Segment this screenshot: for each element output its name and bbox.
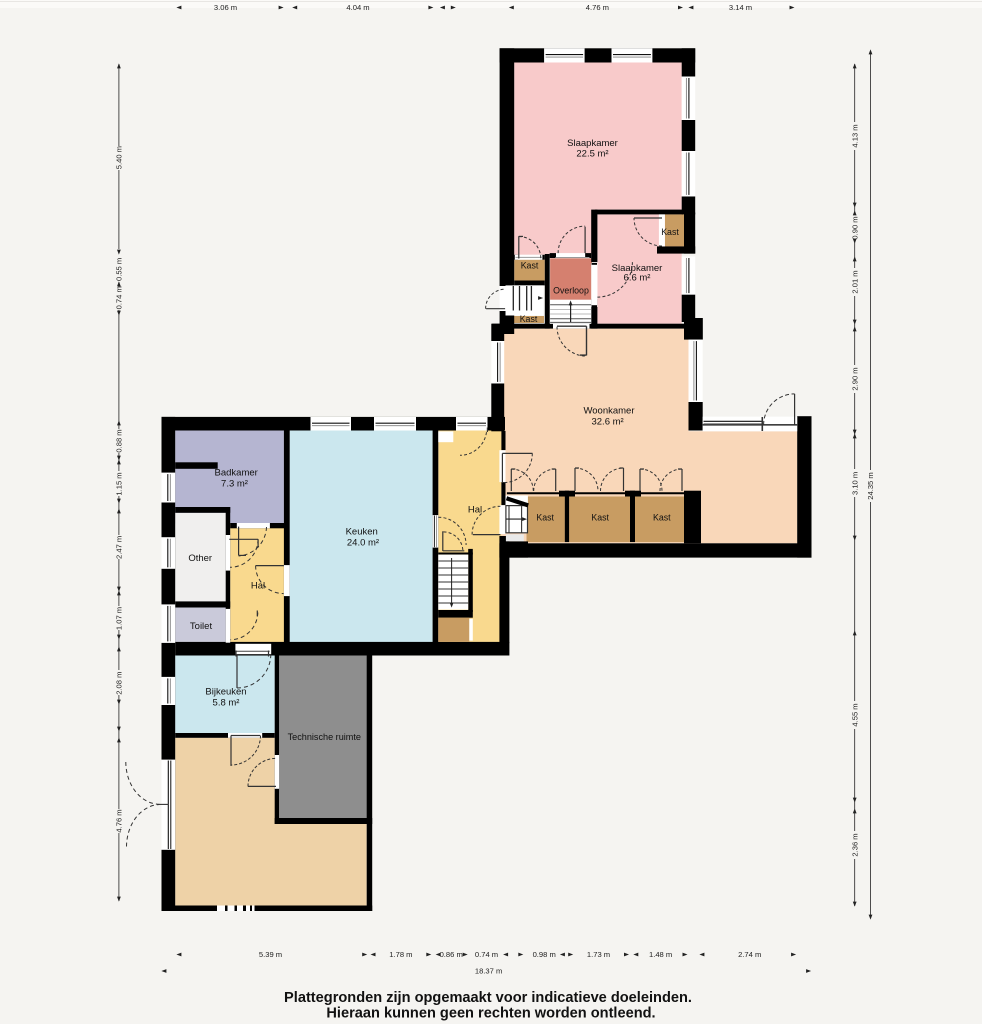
svg-text:Badkamer: Badkamer — [215, 468, 258, 479]
svg-text:Kast: Kast — [661, 227, 679, 237]
svg-text:4.55 m: 4.55 m — [850, 703, 859, 726]
svg-text:2.74 m: 2.74 m — [738, 950, 761, 959]
svg-text:4.13 m: 4.13 m — [850, 124, 859, 147]
svg-text:1.73 m: 1.73 m — [587, 950, 610, 959]
svg-text:0.55 m: 0.55 m — [115, 258, 124, 281]
svg-text:Plattegronden zijn opgemaakt v: Plattegronden zijn opgemaakt voor indica… — [284, 990, 692, 1006]
svg-text:Hal: Hal — [251, 581, 265, 592]
svg-text:2.47 m: 2.47 m — [115, 536, 124, 559]
svg-text:1.07 m: 1.07 m — [115, 607, 124, 630]
svg-text:5.8 m²: 5.8 m² — [213, 698, 240, 709]
svg-text:32.6 m²: 32.6 m² — [591, 417, 623, 428]
svg-text:Keuken: Keuken — [346, 527, 378, 538]
svg-text:0.86 m: 0.86 m — [440, 950, 463, 959]
svg-text:Other: Other — [188, 553, 212, 564]
svg-text:1.15 m: 1.15 m — [115, 472, 124, 495]
svg-text:5.40 m: 5.40 m — [115, 146, 124, 169]
svg-text:Kast: Kast — [521, 261, 539, 271]
svg-text:3.06 m: 3.06 m — [214, 3, 237, 12]
svg-text:0.74 m: 0.74 m — [115, 286, 124, 309]
svg-text:Woonkamer: Woonkamer — [583, 406, 634, 417]
svg-text:Kast: Kast — [536, 513, 554, 523]
svg-text:Hal: Hal — [468, 505, 482, 516]
svg-text:24.35 m: 24.35 m — [866, 472, 875, 499]
svg-text:3.10 m: 3.10 m — [850, 472, 859, 495]
svg-text:Slaapkamer: Slaapkamer — [567, 138, 618, 149]
svg-text:0.74 m: 0.74 m — [475, 950, 498, 959]
svg-text:0.90 m: 0.90 m — [850, 216, 859, 239]
svg-text:Kast: Kast — [520, 314, 538, 324]
svg-text:4.76 m: 4.76 m — [115, 809, 124, 832]
svg-text:Bijkeuken: Bijkeuken — [205, 687, 246, 698]
svg-text:2.90 m: 2.90 m — [850, 367, 859, 390]
svg-text:Technische ruimte: Technische ruimte — [288, 732, 361, 742]
svg-text:4.76 m: 4.76 m — [586, 3, 609, 12]
svg-text:2.08 m: 2.08 m — [115, 672, 124, 695]
svg-text:22.5 m²: 22.5 m² — [576, 149, 608, 160]
svg-text:1.48 m: 1.48 m — [649, 950, 672, 959]
svg-text:3.14 m: 3.14 m — [729, 3, 752, 12]
svg-text:0.88 m: 0.88 m — [115, 429, 124, 452]
svg-text:Overloop: Overloop — [553, 286, 589, 296]
svg-text:1.78 m: 1.78 m — [389, 950, 412, 959]
svg-text:4.04 m: 4.04 m — [346, 3, 369, 12]
svg-text:18.37 m: 18.37 m — [475, 967, 502, 976]
svg-text:2.01 m: 2.01 m — [850, 270, 859, 293]
svg-text:Kast: Kast — [653, 513, 671, 523]
svg-text:Toilet: Toilet — [190, 621, 213, 632]
svg-text:5.39 m: 5.39 m — [259, 950, 282, 959]
svg-text:24.0 m²: 24.0 m² — [347, 538, 379, 549]
svg-text:7.3 m²: 7.3 m² — [221, 479, 248, 490]
svg-text:Hieraan kunnen geen rechten wo: Hieraan kunnen geen rechten worden ontle… — [326, 1006, 655, 1022]
svg-text:6.6 m²: 6.6 m² — [624, 273, 651, 284]
svg-text:Kast: Kast — [591, 513, 609, 523]
svg-text:2.36 m: 2.36 m — [850, 833, 859, 856]
svg-text:0.98 m: 0.98 m — [533, 950, 556, 959]
